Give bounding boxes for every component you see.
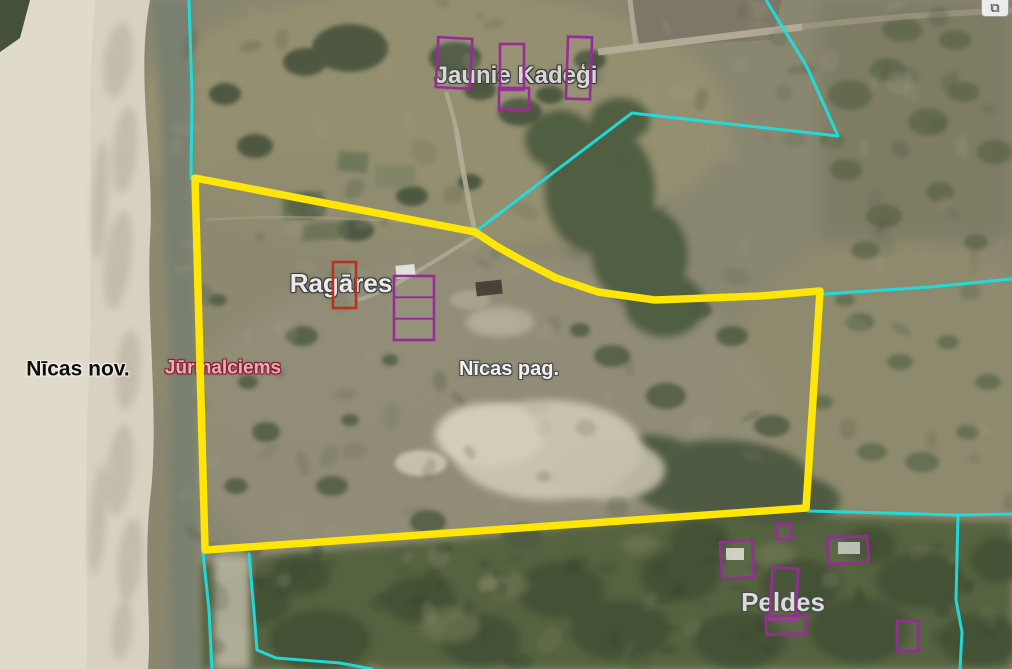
label-nicas-pag: Nīcas pag. bbox=[459, 359, 559, 379]
label-jaunie-kadegi: Jaunie Kadeģi bbox=[435, 64, 598, 88]
label-peldes: Peldes bbox=[741, 589, 825, 615]
label-jurmalciems: Jūrmalciems bbox=[165, 359, 281, 378]
label-nicas-nov: Nīcas nov. bbox=[26, 359, 129, 380]
map-control-button[interactable]: ⧉ bbox=[981, 0, 1009, 17]
label-ragares: Ragāres bbox=[290, 270, 393, 296]
layers-icon: ⧉ bbox=[990, 0, 999, 16]
labels-layer: Jaunie Kadeģi Nīcas nov. Jūrmalciems Rag… bbox=[0, 0, 1012, 669]
satellite-map[interactable]: Jaunie Kadeģi Nīcas nov. Jūrmalciems Rag… bbox=[0, 0, 1012, 669]
